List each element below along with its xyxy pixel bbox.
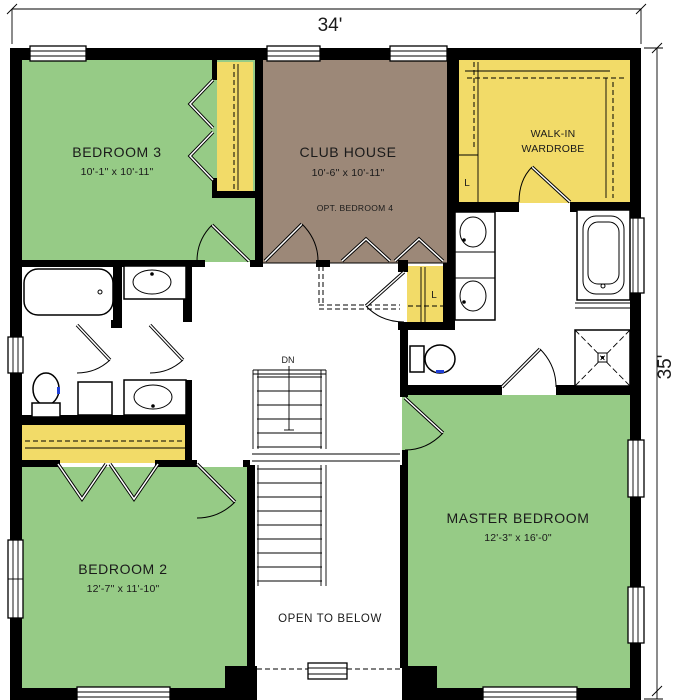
bedroom3-closet-floor	[217, 62, 253, 195]
clubhouse-floor	[263, 60, 447, 263]
window	[628, 440, 644, 497]
dimension-width-label: 34'	[318, 15, 343, 36]
master-bedroom-size: 12'-3" x 16'-0"	[484, 532, 552, 544]
floor-plan: 34' 35' BEDROOM 3 10'-1" x 10'-11" CLUB …	[0, 0, 700, 700]
vanity-sink	[124, 266, 186, 299]
bedroom3-size: 10'-1" x 10'-11"	[81, 166, 154, 178]
window	[77, 687, 170, 700]
clubhouse-size: 10'-6" x 10'-11"	[312, 167, 385, 179]
stair-direction-arrow	[284, 366, 294, 430]
stair-rails	[253, 370, 326, 586]
walkin-label-line2: WARDROBE	[521, 143, 584, 155]
door-swing-bath-right	[150, 325, 183, 373]
window	[30, 46, 86, 61]
clubhouse-label: CLUB HOUSE	[299, 144, 396, 160]
window	[483, 687, 577, 700]
door-swing-bath-left	[77, 325, 110, 373]
shower	[575, 330, 630, 386]
linen-closet-upper-label: L	[464, 178, 470, 189]
open-to-below-label: OPEN TO BELOW	[278, 613, 382, 625]
window	[308, 663, 347, 679]
toilet	[410, 345, 455, 373]
clubhouse-option-note: OPT. BEDROOM 4	[317, 203, 393, 213]
open-to-below-edge	[257, 663, 402, 679]
landing-railing	[250, 449, 402, 465]
window	[8, 540, 23, 618]
linen-closet-lower-label: L	[431, 290, 437, 301]
bedroom2-size: 12'-7" x 11'-10"	[87, 583, 160, 595]
double-vanity	[455, 212, 495, 320]
window	[8, 337, 23, 373]
window	[390, 46, 447, 61]
bedroom2-label: BEDROOM 2	[78, 561, 167, 577]
staircase	[250, 366, 402, 586]
vanity-sink	[124, 380, 186, 415]
dimension-height-label: 35'	[655, 355, 676, 380]
wall-top	[10, 48, 641, 60]
stairs-down-label: DN	[282, 355, 295, 365]
master-bedroom-label: MASTER BEDROOM	[447, 510, 590, 526]
dimension-right: 35'	[644, 43, 676, 699]
stair-treads	[257, 377, 322, 581]
bedroom3-label: BEDROOM 3	[72, 144, 161, 160]
door-swing-master-hall	[366, 272, 404, 322]
toilet	[32, 373, 60, 417]
wall-step-left	[225, 666, 257, 700]
bedroom2-closet-floor	[22, 424, 188, 463]
window	[628, 587, 644, 643]
master-bathtub	[575, 210, 632, 308]
door-swing-master-bath	[502, 349, 556, 387]
dimension-top: 34'	[7, 4, 646, 44]
walkin-label-line1: WALK-IN	[531, 128, 576, 140]
bathtub	[24, 269, 113, 315]
base-cabinet	[78, 382, 112, 415]
window	[267, 46, 320, 61]
wall-step-right	[402, 666, 437, 700]
